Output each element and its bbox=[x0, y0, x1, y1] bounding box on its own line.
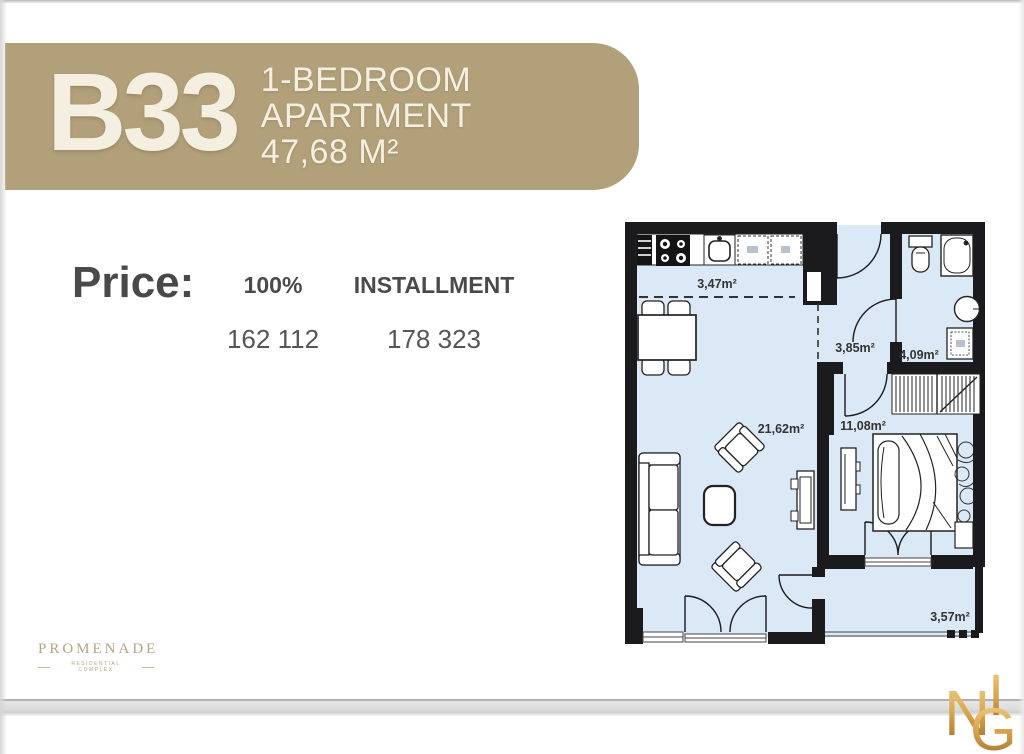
unit-banner: B33 1-BEDROOM APARTMENT 47,68 M² bbox=[5, 43, 639, 190]
room-label-living-room: 21,62m² bbox=[758, 422, 805, 436]
kitchen-fixtures bbox=[637, 234, 803, 266]
wall-niche bbox=[807, 272, 821, 301]
wardrobe bbox=[892, 374, 980, 414]
brand-subtitle: RESIDENTIAL COMPLEX bbox=[54, 661, 137, 673]
price-label: Price: bbox=[72, 258, 194, 308]
sofa bbox=[639, 453, 680, 565]
shower bbox=[941, 235, 973, 276]
brand-rule-right bbox=[142, 667, 154, 668]
developer-monogram: I N G bbox=[930, 657, 1022, 754]
coffee-table bbox=[704, 486, 735, 525]
apartment-title-line1: 1-BEDROOM bbox=[261, 62, 472, 98]
page-separator bbox=[0, 699, 1024, 716]
monogram-letter-g: G bbox=[970, 696, 1017, 754]
railing-posts bbox=[947, 630, 979, 638]
room-label-balcony: 3,57m² bbox=[930, 610, 970, 624]
page-edge-right bbox=[1018, 0, 1024, 754]
nightstand bbox=[955, 522, 973, 548]
bed bbox=[873, 434, 957, 531]
apartment-area: 47,68 M² bbox=[261, 134, 472, 170]
toilet bbox=[909, 236, 932, 247]
balcony-outside bbox=[825, 638, 977, 646]
unit-number: B33 bbox=[47, 58, 237, 176]
price-value-full: 162 112 bbox=[203, 324, 343, 355]
brand-logo: PROMENADE RESIDENTIAL COMPLEX bbox=[38, 641, 154, 673]
apartment-title: 1-BEDROOM APARTMENT 47,68 M² bbox=[261, 62, 472, 170]
brand-subtitle-row: RESIDENTIAL COMPLEX bbox=[38, 661, 154, 673]
page-edge-top bbox=[0, 0, 1024, 3]
brand-rule-left bbox=[38, 667, 50, 668]
price-header-installment: INSTALLMENT bbox=[348, 272, 520, 299]
floor-plan: 3,47m² 3,85m² 4,09m² 21,62m² 11,08m² 3,5… bbox=[625, 222, 985, 646]
room-label-kitchen: 3,47m² bbox=[697, 277, 737, 291]
apartment-title-line2: APARTMENT bbox=[261, 98, 472, 134]
dining-table bbox=[638, 315, 696, 360]
price-value-installment: 178 323 bbox=[348, 324, 520, 355]
stove bbox=[656, 235, 690, 266]
brochure-page: B33 1-BEDROOM APARTMENT 47,68 M² Price: … bbox=[0, 0, 1024, 754]
room-label-hallway: 3,85m² bbox=[835, 341, 875, 355]
room-label-bathroom: 4,09m² bbox=[899, 348, 939, 362]
brand-name: PROMENADE bbox=[38, 641, 154, 658]
room-label-bedroom: 11,08m² bbox=[840, 419, 886, 433]
price-header-full: 100% bbox=[203, 272, 343, 299]
page-edge-left bbox=[0, 0, 7, 754]
